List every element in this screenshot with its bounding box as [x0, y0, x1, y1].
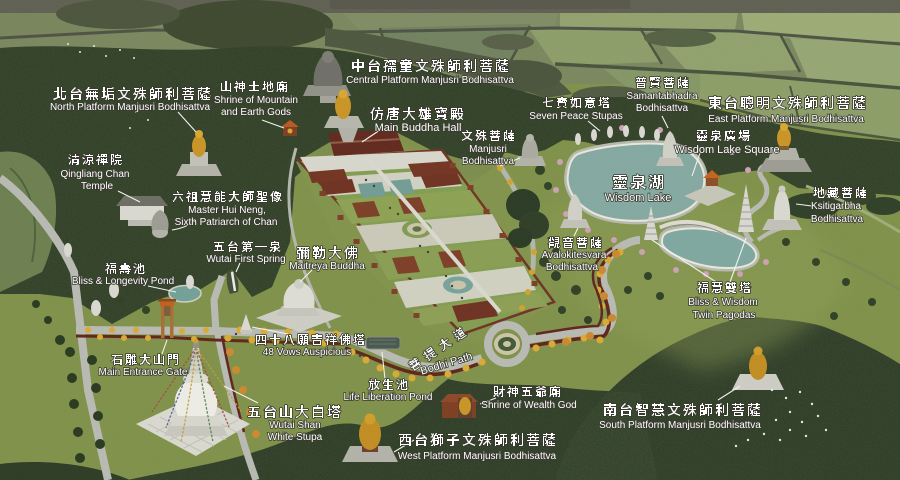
svg-text:Life Liberation Pond: Life Liberation Pond — [344, 392, 433, 403]
svg-text:Bliss & Wisdom: Bliss & Wisdom — [688, 297, 757, 308]
svg-text:Shrine of Mountain: Shrine of Mountain — [214, 95, 298, 106]
svg-text:Qingliang Chan: Qingliang Chan — [61, 169, 130, 180]
svg-text:Seven Peace Stupas: Seven Peace Stupas — [529, 111, 622, 122]
svg-text:Bodhisattva: Bodhisattva — [546, 262, 599, 273]
svg-text:Ksitigarbha: Ksitigarbha — [811, 201, 861, 212]
svg-text:and Earth Gods: and Earth Gods — [221, 107, 291, 118]
svg-text:Wisdom Lake: Wisdom Lake — [605, 192, 672, 204]
svg-text:Central Platform Manjusri Bodh: Central Platform Manjusri Bodhisattva — [346, 75, 514, 86]
svg-text:East Platform Manjusri Bodhisa: East Platform Manjusri Bodhisattva — [708, 114, 864, 125]
svg-text:Shrine of Wealth God: Shrine of Wealth God — [481, 400, 576, 411]
svg-text:Twin Pagodas: Twin Pagodas — [693, 310, 756, 321]
svg-text:Bodhisattva: Bodhisattva — [636, 103, 689, 114]
svg-text:Bliss & Longevity Pond: Bliss & Longevity Pond — [72, 276, 174, 287]
svg-text:Master Hui Neng,: Master Hui Neng, — [188, 205, 266, 216]
svg-text:Wisdom Lake Square: Wisdom Lake Square — [674, 144, 779, 156]
svg-text:Samantabhadra: Samantabhadra — [626, 91, 698, 102]
svg-text:Sixth Patriarch of Chan: Sixth Patriarch of Chan — [175, 217, 278, 228]
svg-text:North Platform Manjusri Bodhis: North Platform Manjusri Bodhisattva — [50, 102, 211, 113]
svg-text:West Platform Manjusri Bodhisa: West Platform Manjusri Bodhisattva — [398, 451, 557, 462]
svg-text:Wutai Shan: Wutai Shan — [269, 420, 321, 431]
svg-text:Main Buddha Hall: Main Buddha Hall — [375, 122, 462, 134]
svg-text:South Platform Manjusri Bodhis: South Platform Manjusri Bodhisattva — [599, 420, 761, 431]
svg-text:48 Vows Auspicious: 48 Vows Auspicious — [263, 347, 351, 358]
svg-text:Wutai First Spring: Wutai First Spring — [206, 254, 285, 265]
svg-text:Temple: Temple — [81, 181, 114, 192]
svg-text:Avalokitesvara: Avalokitesvara — [542, 250, 607, 261]
svg-text:Bodhisattva: Bodhisattva — [811, 214, 864, 225]
svg-text:Main Entrance Gate: Main Entrance Gate — [99, 367, 188, 378]
svg-text:Manjusri: Manjusri — [469, 144, 507, 155]
svg-text:Bodhisattva: Bodhisattva — [462, 156, 515, 167]
svg-text:Maitreya Buddha: Maitreya Buddha — [289, 261, 365, 272]
svg-text:White Stupa: White Stupa — [268, 432, 323, 443]
